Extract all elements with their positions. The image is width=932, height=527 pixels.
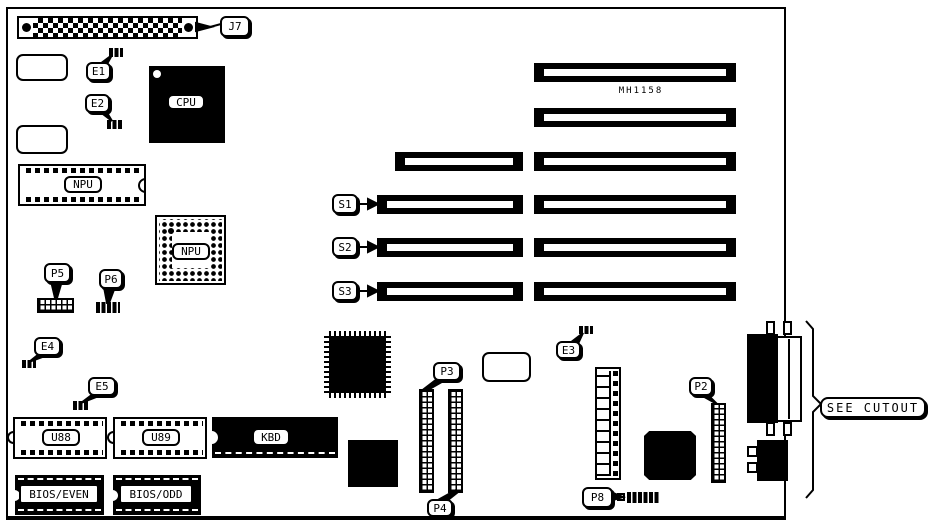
slot-contact-strip <box>387 288 513 295</box>
bios-even-dash-top <box>18 478 101 480</box>
db25-screw-top-right <box>783 321 792 335</box>
e3-jumper <box>579 326 593 334</box>
callout-e3: E3 <box>556 341 581 359</box>
slot-contact-strip <box>544 201 726 208</box>
npu-dip-notch <box>138 178 146 193</box>
db25-screw-bottom-right <box>783 422 792 436</box>
npu-dip-label: NPU <box>64 176 102 193</box>
expansion-slot-right-3 <box>534 152 736 171</box>
db25-face <box>776 336 802 422</box>
npu-pga-socket: NPU <box>155 215 226 285</box>
e1-jumper <box>109 48 123 57</box>
oscillator-mid <box>482 352 531 382</box>
j7-left-hole <box>22 23 31 32</box>
callout-s2: S2 <box>332 237 358 257</box>
callout-p8: P8 <box>582 487 613 508</box>
bios-even-chip: BIOS/EVEN <box>15 475 104 515</box>
u88-label: U88 <box>42 429 80 446</box>
bios-odd-dash-bottom <box>116 509 198 511</box>
vertical-socket-dashes <box>613 371 618 476</box>
chip-square <box>348 440 398 487</box>
db25-face-divider <box>788 339 790 419</box>
oscillator-bottom <box>16 125 68 154</box>
npu-dip-pins-top <box>20 166 144 175</box>
bios-even-label: BIOS/EVEN <box>19 484 99 504</box>
callout-j7: J7 <box>220 16 250 37</box>
see-cutout-label: SEE CUTOUT <box>820 397 926 418</box>
npu-pga-pin1-dot <box>168 228 174 234</box>
kbd-dashed-line <box>215 452 335 454</box>
u89-socket: U89 <box>113 417 207 459</box>
slot-contact-strip <box>544 69 726 76</box>
slot-contact-strip <box>405 158 513 165</box>
npu-pga-label: NPU <box>172 243 210 260</box>
u88-pins-top <box>15 419 105 428</box>
p6-header <box>96 302 120 313</box>
bios-even-dash-bottom <box>18 509 101 511</box>
expansion-slot-s1 <box>377 195 523 214</box>
p2-connector <box>711 403 726 483</box>
plcc-chip <box>644 431 696 480</box>
bios-odd-label: BIOS/ODD <box>119 484 193 504</box>
npu-dip-socket: NPU <box>18 164 146 206</box>
din-connector-body <box>757 440 788 481</box>
qfp-body <box>329 336 386 393</box>
db25-screw-top-left <box>766 321 775 335</box>
p5-header <box>37 298 74 313</box>
callout-p5: P5 <box>44 263 71 283</box>
expansion-slot-right-5 <box>534 238 736 257</box>
callout-e5: E5 <box>88 377 116 396</box>
callout-e4: E4 <box>34 337 61 356</box>
slot-contact-strip <box>544 244 726 251</box>
u88-pins-bottom <box>15 448 105 457</box>
p4-connector <box>448 389 463 493</box>
p3-connector <box>419 389 434 493</box>
board-model-text: MH1158 <box>606 84 676 97</box>
j7-connector <box>17 16 198 39</box>
kbd-notch <box>212 431 218 444</box>
cpu-label: CPU <box>167 94 205 110</box>
qfp-chip <box>324 331 391 398</box>
j7-pin-grid <box>33 18 182 37</box>
slot-contact-strip <box>544 114 726 121</box>
expansion-slot-right-2 <box>534 108 736 127</box>
kbd-label: KBD <box>252 428 290 446</box>
expansion-slot-right-1 <box>534 63 736 82</box>
callout-p3: P3 <box>433 362 461 381</box>
cutout-brace <box>806 321 821 498</box>
callout-p4: P4 <box>427 499 453 517</box>
j7-right-hole <box>184 23 193 32</box>
expansion-slot-s2 <box>377 238 523 257</box>
callout-e1: E1 <box>86 62 111 81</box>
callout-s1: S1 <box>332 194 358 214</box>
bios-odd-dash-top <box>116 478 198 480</box>
qfp-pins-right <box>386 336 391 393</box>
p8-header <box>627 492 659 503</box>
p8-end-block <box>617 493 625 501</box>
u89-pins-bottom <box>115 448 205 457</box>
e4-jumper <box>22 360 36 368</box>
slot-contact-strip <box>387 201 513 208</box>
vertical-socket <box>595 367 621 480</box>
u88-socket: U88 <box>13 417 107 459</box>
slot-contact-strip <box>387 244 513 251</box>
cpu-chip: CPU <box>149 66 225 143</box>
u89-label: U89 <box>142 429 180 446</box>
callout-p6: P6 <box>99 269 123 289</box>
u89-pins-top <box>115 419 205 428</box>
expansion-slot-right-4 <box>534 195 736 214</box>
npu-dip-pins-bottom <box>20 195 144 204</box>
db25-screw-bottom-left <box>766 422 775 436</box>
expansion-slot-right-6 <box>534 282 736 301</box>
expansion-slot-left-1 <box>395 152 523 171</box>
bios-odd-notch <box>113 490 118 501</box>
qfp-pins-bottom <box>329 393 386 398</box>
callout-e2: E2 <box>85 94 110 113</box>
vertical-socket-squares <box>597 371 611 476</box>
slot-contact-strip <box>544 158 726 165</box>
slot-contact-strip <box>544 288 726 295</box>
oscillator-top <box>16 54 68 81</box>
kbd-chip: KBD <box>212 417 338 458</box>
e5-jumper <box>73 401 88 410</box>
bios-odd-chip: BIOS/ODD <box>113 475 201 515</box>
cpu-pin1-dot <box>153 70 161 78</box>
e2-jumper <box>107 120 122 129</box>
motherboard-diagram: CPU NPU NPU MH1158 <box>0 0 932 527</box>
callout-s3: S3 <box>332 281 358 301</box>
db25-body <box>747 334 778 423</box>
expansion-slot-s3 <box>377 282 523 301</box>
callout-p2: P2 <box>689 377 713 396</box>
